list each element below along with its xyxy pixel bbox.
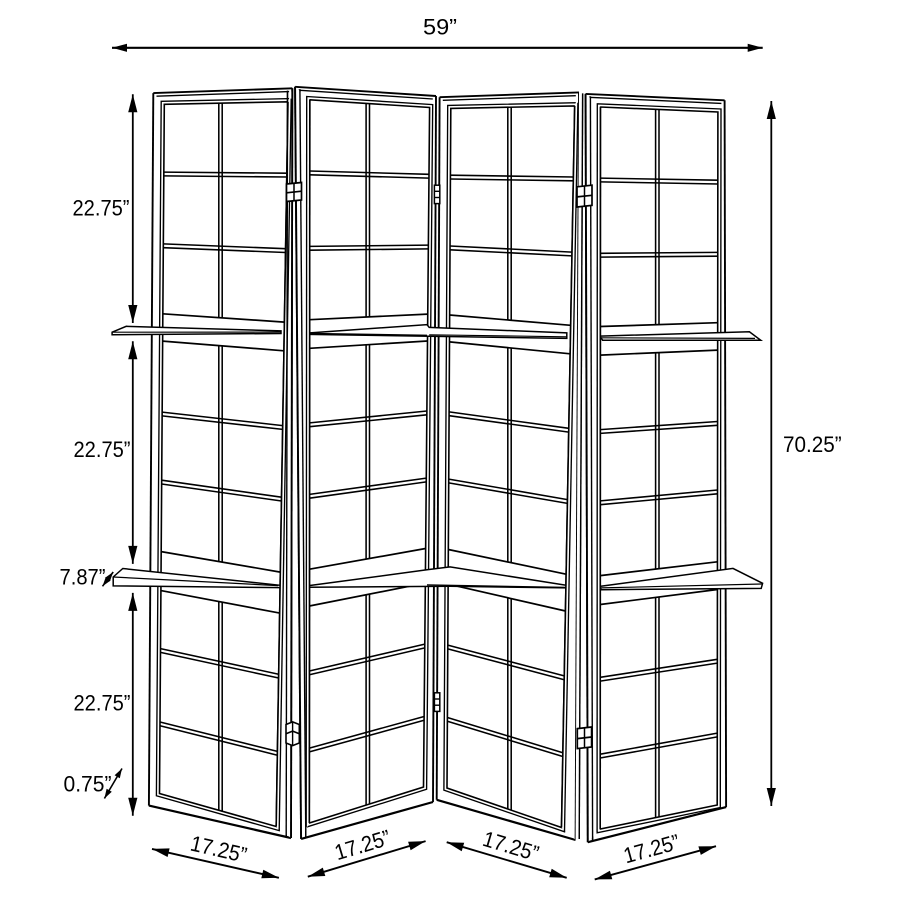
svg-text:22.75”: 22.75” bbox=[74, 691, 131, 716]
svg-text:17.25”: 17.25” bbox=[332, 825, 394, 865]
svg-text:17.25”: 17.25” bbox=[188, 831, 249, 868]
svg-text:0.75”: 0.75” bbox=[64, 772, 112, 797]
svg-text:17.25”: 17.25” bbox=[621, 829, 683, 868]
svg-text:22.75”: 22.75” bbox=[73, 196, 130, 221]
svg-text:7.87”: 7.87” bbox=[60, 564, 106, 589]
svg-text:17.25”: 17.25” bbox=[480, 826, 542, 866]
svg-text:59”: 59” bbox=[423, 15, 457, 40]
svg-text:22.75”: 22.75” bbox=[74, 437, 131, 462]
svg-text:70.25”: 70.25” bbox=[783, 432, 842, 457]
